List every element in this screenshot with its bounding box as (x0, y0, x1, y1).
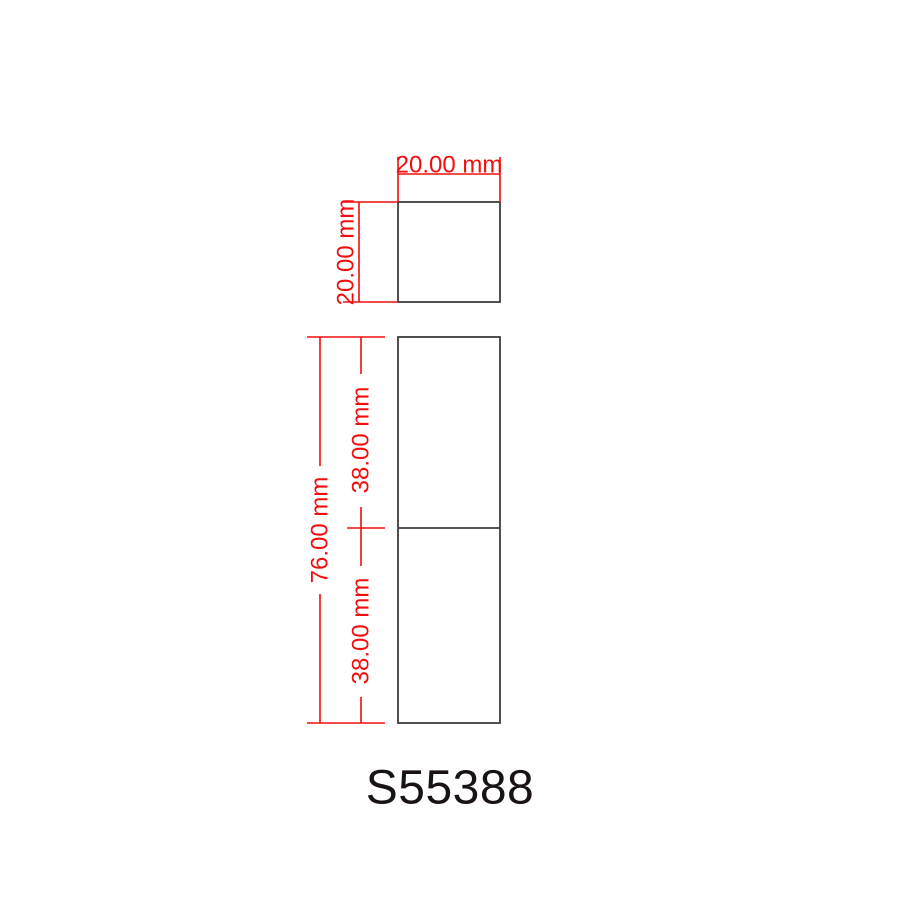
dimension-top-width: 20.00 mm (396, 152, 503, 203)
dimension-total-height-label: 76.00 mm (307, 477, 334, 584)
drawing-sheet: 20.00 mm 20.00 mm 76.00 mm 38.00 mm (0, 0, 900, 900)
dimension-top-height-label: 20.00 mm (333, 199, 360, 306)
dimension-total-height: 76.00 mm (307, 337, 334, 723)
side-view (398, 337, 500, 723)
dimension-upper-section-label: 38.00 mm (348, 387, 375, 494)
part-number-label: S55388 (366, 762, 535, 815)
dimension-top-height: 20.00 mm (333, 199, 399, 306)
dimension-top-width-label: 20.00 mm (396, 152, 503, 179)
top-view (398, 202, 500, 302)
dimension-lower-section-label: 38.00 mm (348, 578, 375, 685)
dimension-upper-section: 38.00 mm (348, 337, 375, 528)
top-view-outline (398, 202, 500, 302)
technical-drawing-canvas: 20.00 mm 20.00 mm 76.00 mm 38.00 mm (0, 0, 900, 900)
side-view-outline (398, 337, 500, 723)
dimension-lower-section: 38.00 mm (348, 528, 375, 723)
